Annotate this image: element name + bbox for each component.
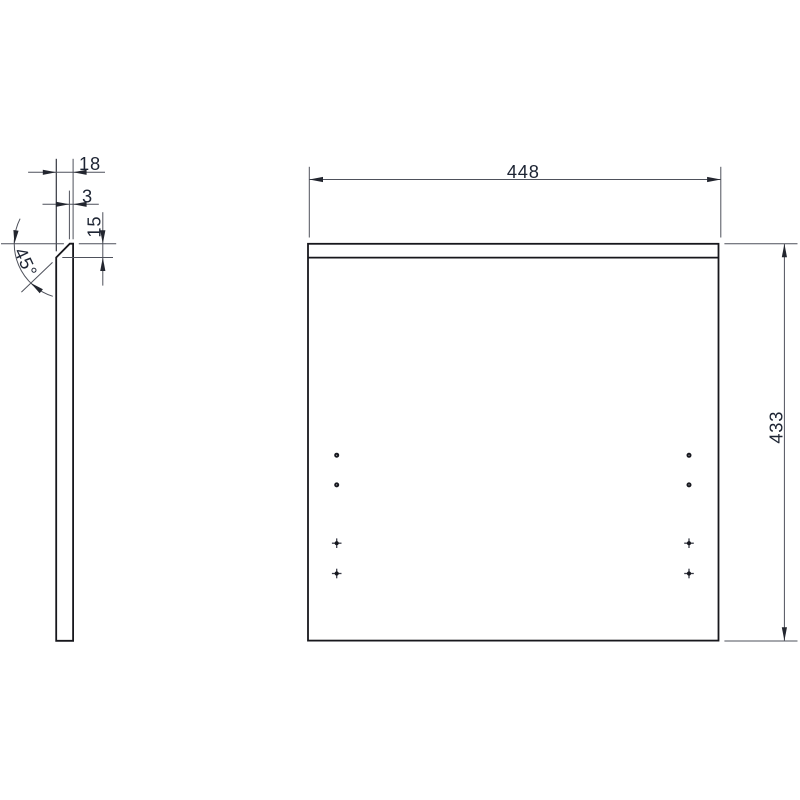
svg-text:15: 15: [84, 216, 105, 238]
svg-text:3: 3: [82, 186, 93, 207]
svg-text:433: 433: [766, 411, 787, 444]
svg-text:448: 448: [507, 161, 540, 182]
svg-text:18: 18: [79, 153, 101, 174]
